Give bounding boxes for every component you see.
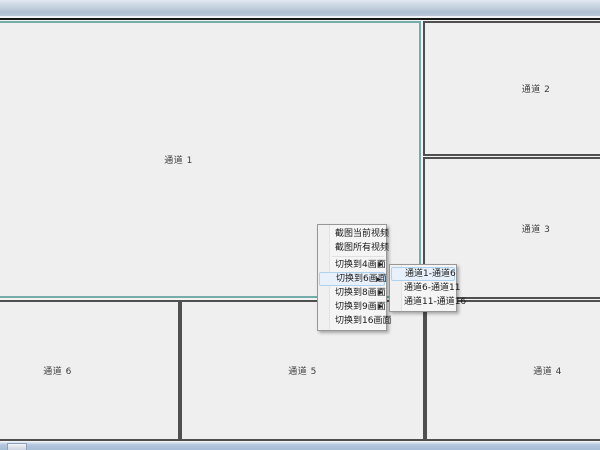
menu-item-label: 截图所有视频 [335, 243, 389, 253]
menu-item-label: 切换到16画面 [335, 316, 391, 326]
channel-label: 通道 5 [288, 364, 317, 377]
submenu-item-channels-11-16[interactable]: 通道11-通道16 [390, 295, 456, 309]
window-top-divider [0, 18, 600, 20]
submenu-arrow-icon: ▶ [378, 286, 383, 300]
menu-item-label: 通道6-通道11 [404, 283, 460, 293]
menu-item-switch-8-split[interactable]: 切换到8画面 ▶ [318, 286, 386, 300]
menu-item-switch-6-split[interactable]: 切换到6画面 ▶ [319, 272, 385, 286]
channel-label: 通道 3 [522, 222, 551, 235]
channel-label: 通道 1 [164, 153, 193, 166]
submenu-item-channels-6-11[interactable]: 通道6-通道11 [390, 281, 456, 295]
submenu-item-channels-1-6[interactable]: 通道1-通道6 [391, 267, 455, 281]
taskbar [0, 442, 600, 450]
video-panel-channel-2[interactable]: 通道 2 [423, 21, 600, 156]
context-menu: 截图当前视频 截图所有视频 切换到4画面 ▶ 切换到6画面 ▶ 切换到8画面 ▶… [317, 224, 387, 331]
menu-item-label: 通道11-通道16 [404, 297, 466, 307]
menu-item-switch-9-split[interactable]: 切换到9画面 ▶ [318, 300, 386, 314]
taskbar-button[interactable] [7, 443, 27, 450]
submenu-arrow-icon: ▶ [376, 273, 381, 287]
context-submenu: 通道1-通道6 通道6-通道11 通道11-通道16 [389, 264, 457, 312]
channel-label: 通道 4 [533, 364, 562, 377]
menu-separator [332, 256, 384, 257]
menu-item-switch-4-split[interactable]: 切换到4画面 ▶ [318, 258, 386, 272]
app-window: 通道 1 通道 2 通道 3 通道 6 通道 5 通道 4 截图当前视频 截图所… [0, 0, 600, 450]
menu-item-snapshot-current[interactable]: 截图当前视频 [318, 227, 386, 241]
menu-item-label: 截图当前视频 [335, 229, 389, 239]
video-panel-channel-4[interactable]: 通道 4 [425, 300, 600, 441]
menu-item-snapshot-all[interactable]: 截图所有视频 [318, 241, 386, 255]
title-bar [0, 0, 600, 17]
submenu-arrow-icon: ▶ [378, 300, 383, 314]
channel-label: 通道 6 [43, 364, 72, 377]
menu-item-label: 通道1-通道6 [405, 269, 456, 279]
menu-item-switch-16-split[interactable]: 切换到16画面 [318, 314, 386, 328]
submenu-arrow-icon: ▶ [378, 258, 383, 272]
channel-label: 通道 2 [522, 82, 551, 95]
video-panel-channel-6[interactable]: 通道 6 [0, 300, 180, 441]
